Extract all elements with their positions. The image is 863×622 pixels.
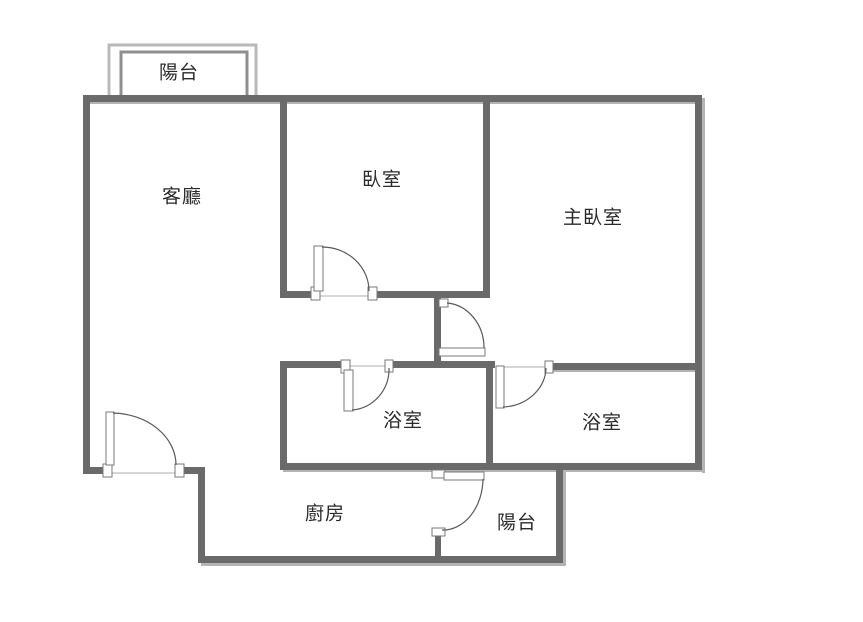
arc-corridor-door <box>447 303 484 348</box>
wall-bedroom-bottom-left <box>280 291 313 298</box>
room-label-master-bedroom: 主臥室 <box>563 203 623 230</box>
wall-kitchen-left <box>198 469 205 563</box>
floor-plan-drawing <box>0 0 863 622</box>
leaf-bath-right-door <box>496 366 504 408</box>
room-label-bedroom: 臥室 <box>362 165 402 192</box>
wall-bath-divider <box>486 361 493 467</box>
wall-top <box>85 95 702 102</box>
arc-bath-left-door <box>352 368 389 410</box>
wall-bath-top-left <box>280 361 350 368</box>
wall-balcony-door-stub <box>435 534 441 558</box>
leaf-corridor-door <box>439 348 485 356</box>
jamb-corridor-top <box>439 299 448 307</box>
jamb-balcony-door-bottom <box>432 528 445 536</box>
wall-balcony-right <box>556 466 563 563</box>
leaf-bath-left-door <box>344 370 353 411</box>
room-label-living-room: 客廳 <box>162 182 202 209</box>
room-label-bathroom-left: 浴室 <box>383 406 423 433</box>
leaf-entry-door <box>106 412 114 465</box>
jamb-entry-left <box>103 464 112 477</box>
arc-bath-right-door <box>503 368 546 407</box>
room-label-balcony-bottom: 陽台 <box>497 508 537 535</box>
floor-plan: 陽台 客廳 臥室 主臥室 浴室 浴室 廚房 陽台 <box>0 0 863 622</box>
wall-bath-left <box>280 361 287 470</box>
wall-bedroom-master <box>483 95 490 298</box>
room-label-balcony-top: 陽台 <box>159 58 199 85</box>
shadow-bottom <box>201 563 566 566</box>
shadow-right <box>702 98 705 473</box>
arc-balcony-door <box>442 479 483 530</box>
wall-master-bottom <box>550 363 702 370</box>
wall-left <box>83 95 90 474</box>
wall-right <box>695 95 702 470</box>
leaf-bedroom-door <box>314 246 323 291</box>
wall-bedroom-bottom-right <box>375 291 490 298</box>
leaf-balcony-door <box>444 472 484 480</box>
wall-bath-top-mid <box>387 361 495 368</box>
wall-baths-bottom <box>280 463 702 470</box>
room-label-kitchen: 廚房 <box>305 499 345 526</box>
wall-bottom <box>198 556 563 563</box>
arc-bedroom-door <box>322 247 369 291</box>
shadow-balcony-right <box>563 469 566 566</box>
jamb-balcony-door-top <box>432 470 445 478</box>
shadow-baths-bottom <box>283 470 705 472</box>
shadow-top <box>88 102 702 104</box>
shadow-master-bottom <box>553 370 702 372</box>
room-label-bathroom-right: 浴室 <box>582 408 622 435</box>
arc-entry-door <box>113 413 176 465</box>
jamb-entry-right <box>175 464 184 477</box>
wall-living-bedroom <box>280 95 287 298</box>
